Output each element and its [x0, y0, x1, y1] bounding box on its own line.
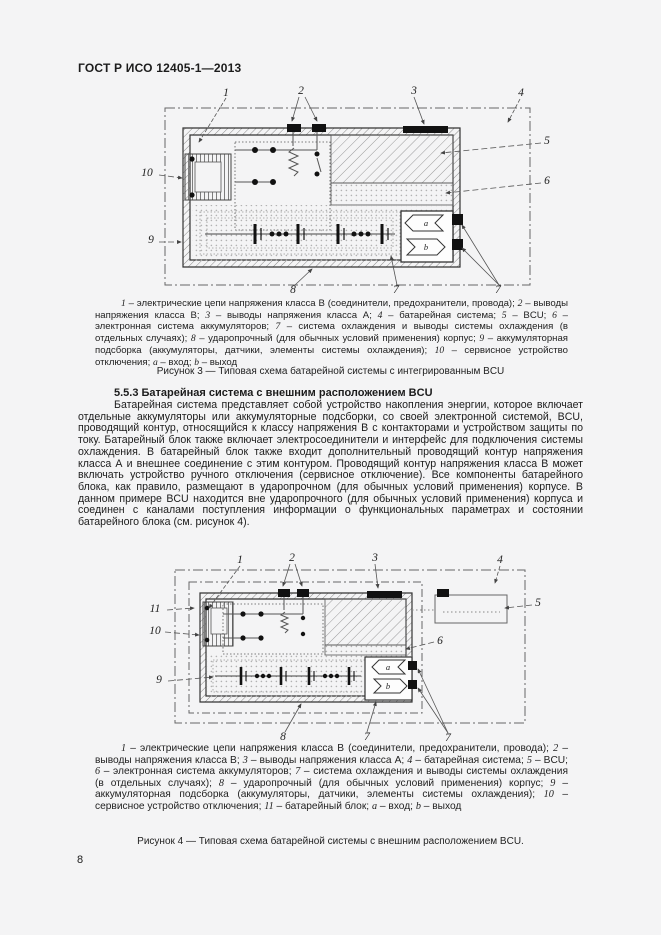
- legend-item: 6 – электронная система аккумуляторов;: [95, 766, 295, 777]
- legend-item: 4 – батарейная система;: [378, 310, 502, 321]
- cooling-port: [408, 661, 417, 670]
- legend-item: 3 – выводы напряжения класса А;: [205, 310, 377, 321]
- figure-callout: 8: [290, 284, 296, 296]
- figure4: 12345687791011ab: [95, 550, 565, 745]
- bcu-region: [331, 135, 453, 183]
- cooling-system: [365, 657, 417, 700]
- figure-callout: 10: [149, 625, 161, 637]
- document-page: ГОСТ Р ИСО 12405-1—2013: [0, 0, 661, 935]
- section-heading: 5.5.3 Батарейная система с внешним распо…: [78, 387, 583, 399]
- figure3-title: Рисунок 3 — Типовая схема батарейной сис…: [0, 366, 661, 377]
- legend-item: 8 – ударопрочный (для обычных условий пр…: [191, 333, 479, 344]
- figure-callout: 7: [364, 731, 370, 743]
- legend-item: 11 – батарейный блок;: [264, 801, 372, 812]
- document-header: ГОСТ Р ИСО 12405-1—2013: [78, 61, 241, 75]
- class-b-terminal: [278, 589, 290, 597]
- figure-callout: 9: [156, 674, 162, 686]
- external-bcu: [412, 589, 507, 623]
- battery-electronics: [331, 183, 453, 205]
- legend-item: 4 – батарейная система;: [407, 755, 527, 766]
- bcu-connector: [437, 589, 449, 597]
- figure-callout: 1: [237, 554, 243, 566]
- cooling-port: [452, 239, 463, 250]
- hatched-interior: [325, 599, 406, 645]
- figure-callout: 5: [544, 135, 550, 147]
- figure4-title: Рисунок 4 — Типовая схема батарейной сис…: [0, 836, 661, 847]
- legend-item: 3 – выводы напряжения класса А;: [243, 755, 408, 766]
- figure-callout: a: [424, 218, 428, 228]
- figure4-diagram: [95, 550, 565, 745]
- class-b-terminal: [297, 589, 309, 597]
- figure3-diagram: [95, 84, 565, 296]
- cooling-port: [408, 680, 417, 689]
- figure-callout: 7: [393, 284, 399, 296]
- legend-item: 8 – ударопрочный (для обычных условий пр…: [219, 778, 550, 789]
- legend-item: 5 – BCU;: [527, 755, 568, 766]
- figure-callout: 5: [535, 597, 541, 609]
- figure-callout: 9: [148, 234, 154, 246]
- legend-item: 5 – BCU;: [502, 310, 552, 321]
- class-b-circuit: [223, 597, 323, 654]
- figure-callout: 2: [289, 552, 295, 564]
- figure3: 123456877910ab: [95, 84, 565, 296]
- figure-callout: 2: [298, 85, 304, 97]
- service-disconnect: [203, 602, 233, 646]
- class-a-terminal: [403, 126, 448, 133]
- cooling-port: [452, 214, 463, 225]
- page-number: 8: [77, 854, 83, 866]
- legend-item: b – выход: [416, 801, 462, 812]
- figure-callout: 4: [497, 554, 503, 566]
- figure-callout: b: [386, 681, 390, 691]
- figure-callout: 7: [495, 284, 501, 296]
- legend-item: 1 – электрические цепи напряжения класса…: [121, 298, 518, 309]
- legend-item: a – вход;: [372, 801, 416, 812]
- class-a-terminal: [367, 591, 402, 598]
- figure-callout: a: [386, 662, 390, 672]
- figure-callout: 8: [280, 731, 286, 743]
- figure-callout: 11: [150, 603, 161, 615]
- battery-electronics: [325, 645, 406, 655]
- figure-callout: 3: [411, 85, 417, 97]
- legend-item: 1 – электрические цепи напряжения класса…: [121, 743, 553, 754]
- figure-callout: 1: [223, 87, 229, 99]
- class-b-terminal: [312, 124, 326, 132]
- figure-callout: 6: [437, 635, 443, 647]
- figure-callout: 6: [544, 175, 550, 187]
- figure-callout: 4: [518, 87, 524, 99]
- section-paragraph: Батарейная система представляет собой ус…: [78, 400, 583, 529]
- service-disconnect: [185, 154, 231, 200]
- figure-callout: b: [424, 242, 428, 252]
- figure-callout: 3: [372, 552, 378, 564]
- figure-callout: 10: [141, 167, 153, 179]
- figure4-legend: 1 – электрические цепи напряжения класса…: [95, 743, 568, 813]
- figure3-legend: 1 – электрические цепи напряжения класса…: [95, 298, 568, 368]
- class-b-terminal: [287, 124, 301, 132]
